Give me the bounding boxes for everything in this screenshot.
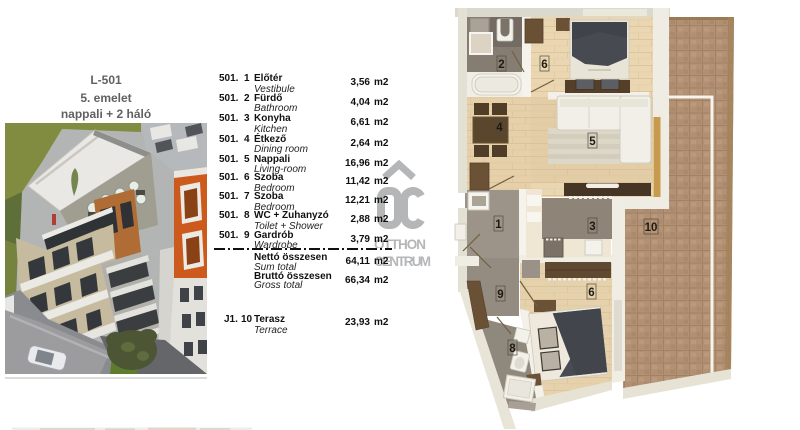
svg-text:6: 6 (588, 287, 594, 299)
svg-text:6: 6 (541, 59, 547, 71)
svg-text:9: 9 (497, 289, 503, 301)
svg-text:5: 5 (589, 136, 596, 148)
svg-text:1: 1 (495, 219, 502, 231)
svg-text:3: 3 (589, 221, 595, 233)
svg-text:8: 8 (509, 343, 516, 355)
svg-text:4: 4 (496, 122, 503, 134)
svg-text:10: 10 (645, 222, 658, 234)
svg-text:2: 2 (498, 59, 504, 71)
